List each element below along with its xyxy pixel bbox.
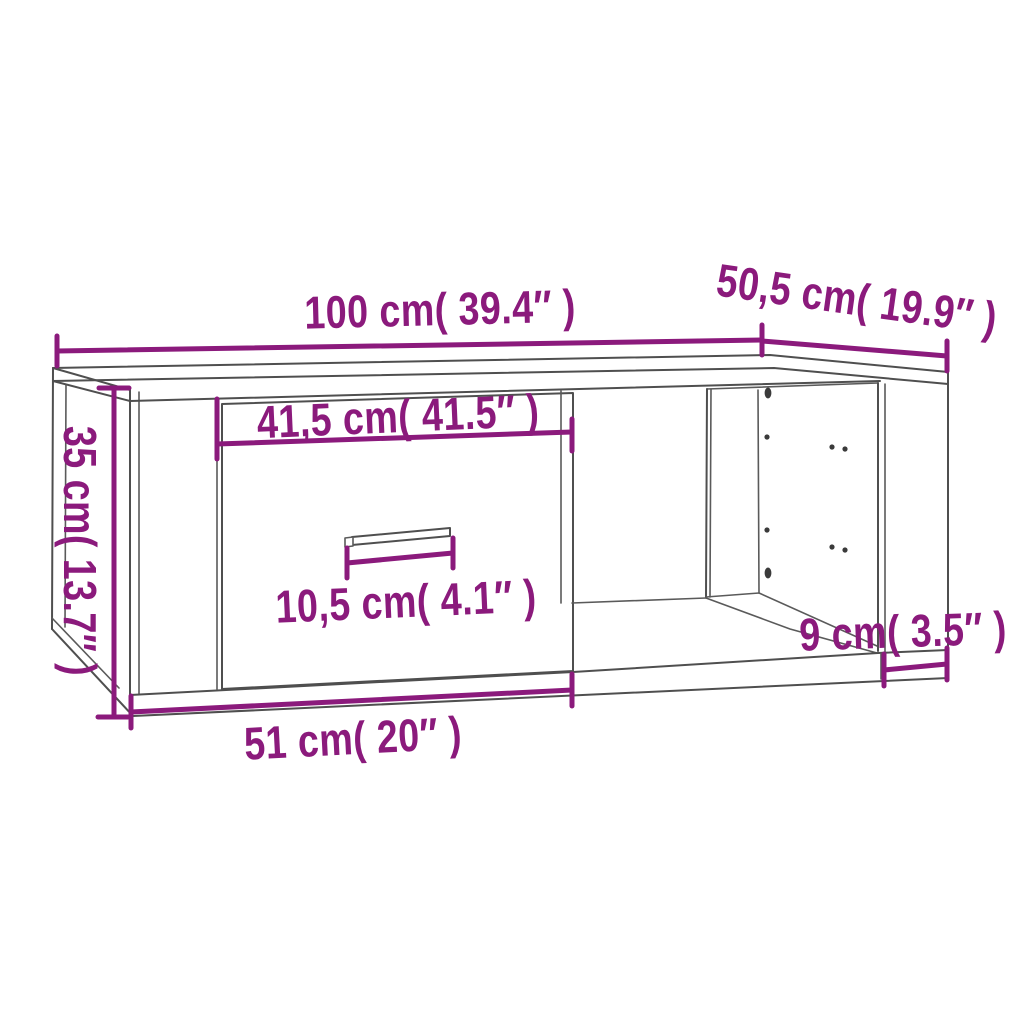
label-side-height: 35 cm( 13.7″ ) (54, 426, 105, 676)
dimension-diagram-page: 100 cm( 39.4″ ) 50,5 cm( 19.9″ ) 35 cm( … (0, 0, 1024, 1024)
cam-hole (765, 568, 772, 579)
divider-bottom-edge (706, 593, 759, 597)
furniture-dimension-diagram: 100 cm( 39.4″ ) 50,5 cm( 19.9″ ) 35 cm( … (0, 0, 1024, 1024)
divider-front-edge-inner (710, 389, 711, 597)
label-right-offset: 9 cm( 3.5″ ) (798, 602, 1007, 661)
label-top-width: 100 cm( 39.4″ ) (304, 280, 577, 338)
left-panel-front-edge (52, 368, 53, 629)
label-top-depth: 50,5 cm( 19.9″ ) (714, 254, 1001, 344)
shelf-floor-back-edge (572, 598, 706, 603)
drill-hole (829, 444, 834, 449)
drill-hole (842, 547, 847, 552)
drill-hole (764, 434, 769, 439)
cam-hole (765, 388, 772, 399)
divider-back-edge (758, 390, 759, 593)
top-panel-top-edge (53, 355, 948, 372)
top-panel-left-edge-bottom (53, 381, 130, 401)
back-panel-holes (764, 388, 847, 579)
label-drawer-front-width: 51 cm( 20″ ) (243, 707, 463, 770)
top-panel-bottom-edge (53, 368, 948, 384)
handle-end-cap (345, 537, 353, 547)
drill-hole (829, 544, 834, 549)
drill-hole (764, 527, 769, 532)
divider-front-edge (706, 389, 707, 597)
drill-hole (842, 446, 847, 451)
